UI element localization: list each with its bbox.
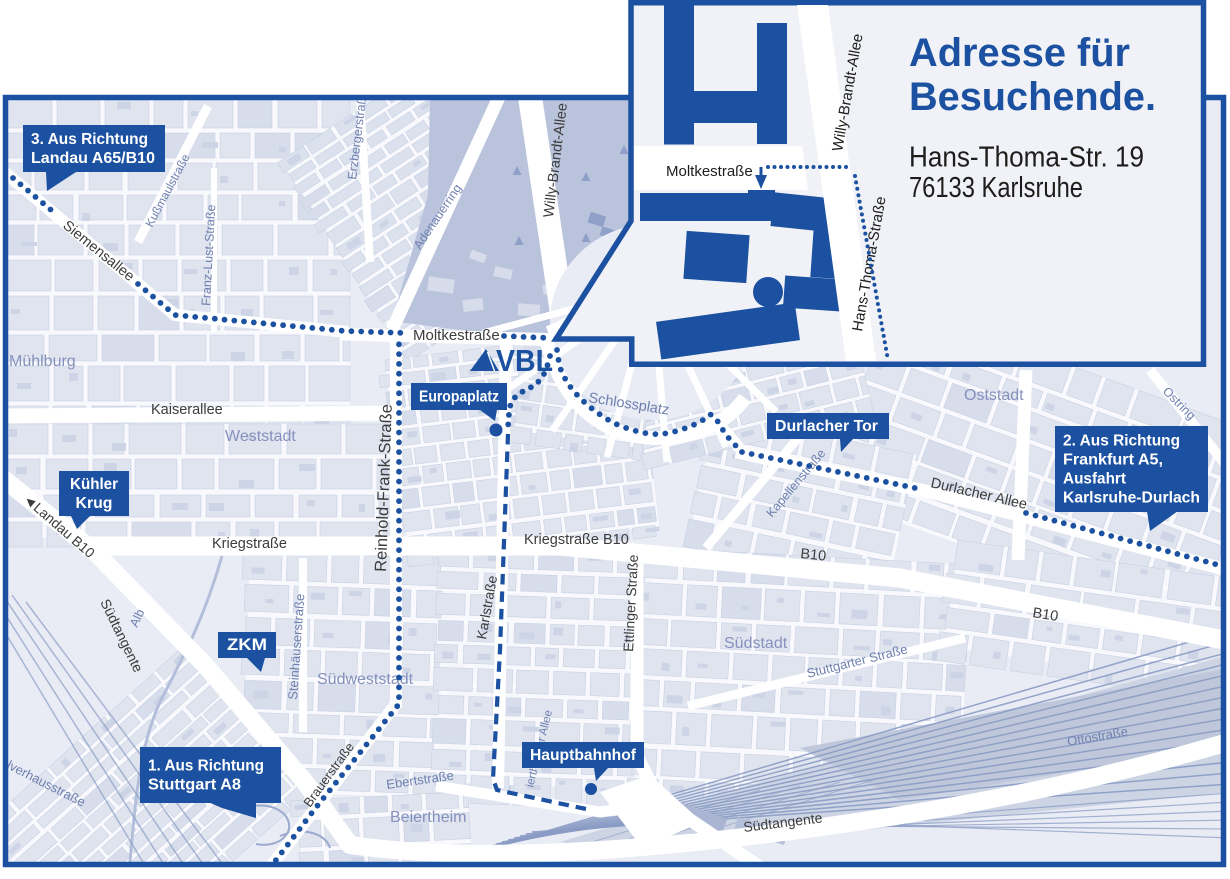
svg-text:Karlsruhe-Durlach: Karlsruhe-Durlach	[1063, 489, 1200, 506]
svg-text:Europaplatz: Europaplatz	[419, 388, 499, 405]
svg-text:Moltkestraße: Moltkestraße	[666, 163, 753, 180]
svg-text:Kaiserallee: Kaiserallee	[151, 402, 223, 418]
svg-text:Kriegstraße: Kriegstraße	[212, 536, 287, 552]
svg-text:Krug: Krug	[76, 495, 113, 512]
svg-text:Ausfahrt: Ausfahrt	[1063, 470, 1127, 487]
svg-text:Landau A65/B10: Landau A65/B10	[31, 150, 155, 167]
svg-text:Beiertheim: Beiertheim	[390, 809, 466, 826]
svg-text:Frankfurt A5,: Frankfurt A5,	[1063, 451, 1163, 468]
svg-text:3. Aus Richtung: 3. Aus Richtung	[31, 131, 148, 148]
svg-text:Moltkestraße: Moltkestraße	[413, 327, 500, 344]
svg-text:Stuttgart A8: Stuttgart A8	[148, 776, 241, 793]
svg-text:Hauptbahnhof: Hauptbahnhof	[530, 747, 637, 764]
svg-text:ZKM: ZKM	[227, 635, 267, 654]
svg-text:Adresse für: Adresse für	[909, 31, 1130, 75]
svg-text:Kühler: Kühler	[70, 476, 118, 493]
svg-text:Durlacher Tor: Durlacher Tor	[775, 418, 878, 435]
svg-text:Mühlburg: Mühlburg	[9, 353, 76, 370]
svg-text:Besuchende.: Besuchende.	[909, 75, 1156, 119]
svg-text:1. Aus Richtung: 1. Aus Richtung	[148, 757, 264, 774]
svg-text:Hans-Thoma-Str. 19: Hans-Thoma-Str. 19	[909, 142, 1144, 174]
svg-text:VBL: VBL	[496, 344, 553, 378]
svg-text:Weststadt: Weststadt	[225, 428, 296, 445]
svg-text:2. Aus Richtung: 2. Aus Richtung	[1063, 432, 1180, 449]
svg-text:B10: B10	[800, 546, 827, 565]
svg-text:Südstadt: Südstadt	[724, 635, 788, 652]
svg-text:76133 Karlsruhe: 76133 Karlsruhe	[909, 172, 1083, 204]
svg-text:Oststadt: Oststadt	[964, 387, 1024, 404]
svg-text:Kriegstraße B10: Kriegstraße B10	[524, 532, 629, 548]
